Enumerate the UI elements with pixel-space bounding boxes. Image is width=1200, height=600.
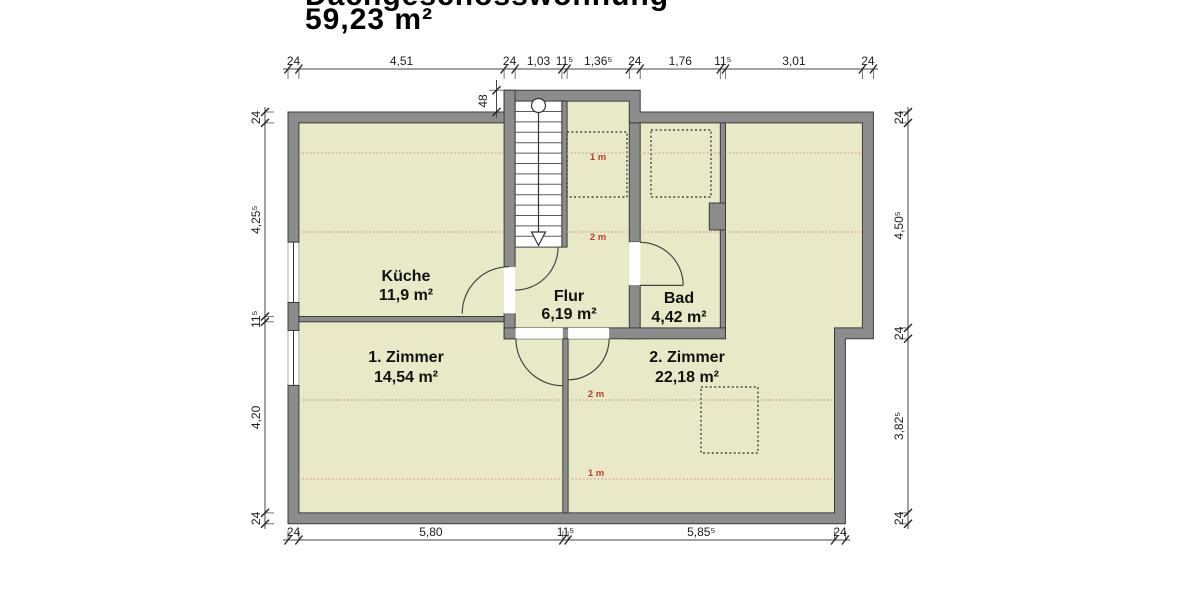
- dim-label: 24: [249, 511, 263, 525]
- wall-kueche-stairs: [504, 90, 515, 267]
- window-zimmer1: [288, 330, 300, 385]
- dim-label: 4,25⁵: [249, 206, 263, 234]
- dim-label: 4,20: [249, 405, 263, 429]
- dim-label: 24: [287, 525, 301, 539]
- dim-label: 11⁵: [249, 310, 263, 327]
- dim-label: 11⁵: [714, 54, 731, 68]
- roof-height-label: 1 m: [590, 152, 606, 163]
- room-area-zimmer2: 22,18 m²: [655, 369, 719, 386]
- title-block: Dachgeschosswohnung 59,23 m²: [305, 0, 669, 36]
- dim-label: 24: [628, 54, 642, 68]
- dim-ticks-right: [899, 108, 912, 528]
- door-opening-kueche: [504, 267, 515, 314]
- dim-label: 24: [287, 54, 301, 68]
- wall-flur-bad-upper: [629, 123, 640, 242]
- roof-height-label: 1 m: [588, 468, 604, 479]
- dim-label: 24: [861, 54, 875, 68]
- page-subtitle-area: 59,23 m²: [305, 3, 433, 36]
- dim-label: 24: [892, 326, 906, 340]
- room-label-kueche: Küche: [382, 268, 431, 285]
- window-kueche: [288, 242, 300, 302]
- door-opening-zimmer2: [568, 328, 609, 339]
- dimension-chain-right: 24 4,50⁵ 24 3,82⁵ 24: [892, 107, 912, 529]
- room-area-zimmer1: 14,54 m²: [374, 369, 438, 386]
- room-area-kueche: 11,9 m²: [379, 287, 433, 304]
- dim-label: 11⁵: [556, 54, 573, 68]
- dimension-chain-bottom: 24 5,80 11⁵ 5,85⁵ 24: [283, 525, 850, 545]
- dim-label: 5,85⁵: [687, 525, 715, 539]
- dim-label: 24: [249, 111, 263, 125]
- dim-label: 4,51: [390, 54, 414, 68]
- door-opening-bad: [629, 242, 640, 285]
- dim-label: 3,01: [782, 54, 806, 68]
- wall-kueche-zimmer1: [299, 317, 504, 322]
- dim-label: 48: [476, 94, 490, 108]
- stairwell: [515, 99, 562, 248]
- dim-label: 3,82⁵: [892, 412, 906, 440]
- room-label-flur: Flur: [554, 288, 584, 305]
- dim-label: 4,50⁵: [892, 211, 906, 239]
- dim-label: 1,03: [527, 54, 551, 68]
- dim-label: 1,36⁵: [584, 54, 612, 68]
- room-label-zimmer1: 1. Zimmer: [368, 349, 444, 366]
- room-area-flur: 6,19 m²: [541, 306, 596, 323]
- roof-height-label: 2 m: [588, 389, 604, 400]
- room-area-bad: 4,42 m²: [651, 309, 706, 326]
- wall-stairs-flur: [562, 101, 567, 247]
- door-opening-zimmer1: [516, 328, 563, 339]
- floor-plan-page: Dachgeschosswohnung 59,23 m²: [0, 0, 1200, 600]
- dim-label: 1,76: [669, 54, 693, 68]
- dim-label: 5,80: [419, 525, 443, 539]
- room-label-zimmer2: 2. Zimmer: [649, 349, 725, 366]
- roof-height-label: 2 m: [590, 232, 606, 243]
- stair-start-circle-icon: [532, 99, 546, 113]
- dimension-chain-top: 24 4,51 24 1,03 11⁵ 1,36⁵ 24 1,76 11⁵ 3,…: [283, 54, 878, 79]
- wall-pillar-bad: [709, 203, 725, 230]
- dimension-chain-left: 24 4,25⁵ 11⁵ 4,20 24: [249, 107, 274, 529]
- floor-plan-svg: Dachgeschosswohnung 59,23 m²: [0, 0, 1200, 600]
- dim-label: 24: [503, 54, 517, 68]
- dim-label: 24: [892, 111, 906, 125]
- wall-zimmer1-zimmer2: [563, 339, 568, 513]
- dim-label: 24: [833, 525, 847, 539]
- room-label-bad: Bad: [664, 290, 694, 307]
- dim-label: 24: [892, 511, 906, 525]
- dim-label: 11⁵: [557, 525, 574, 539]
